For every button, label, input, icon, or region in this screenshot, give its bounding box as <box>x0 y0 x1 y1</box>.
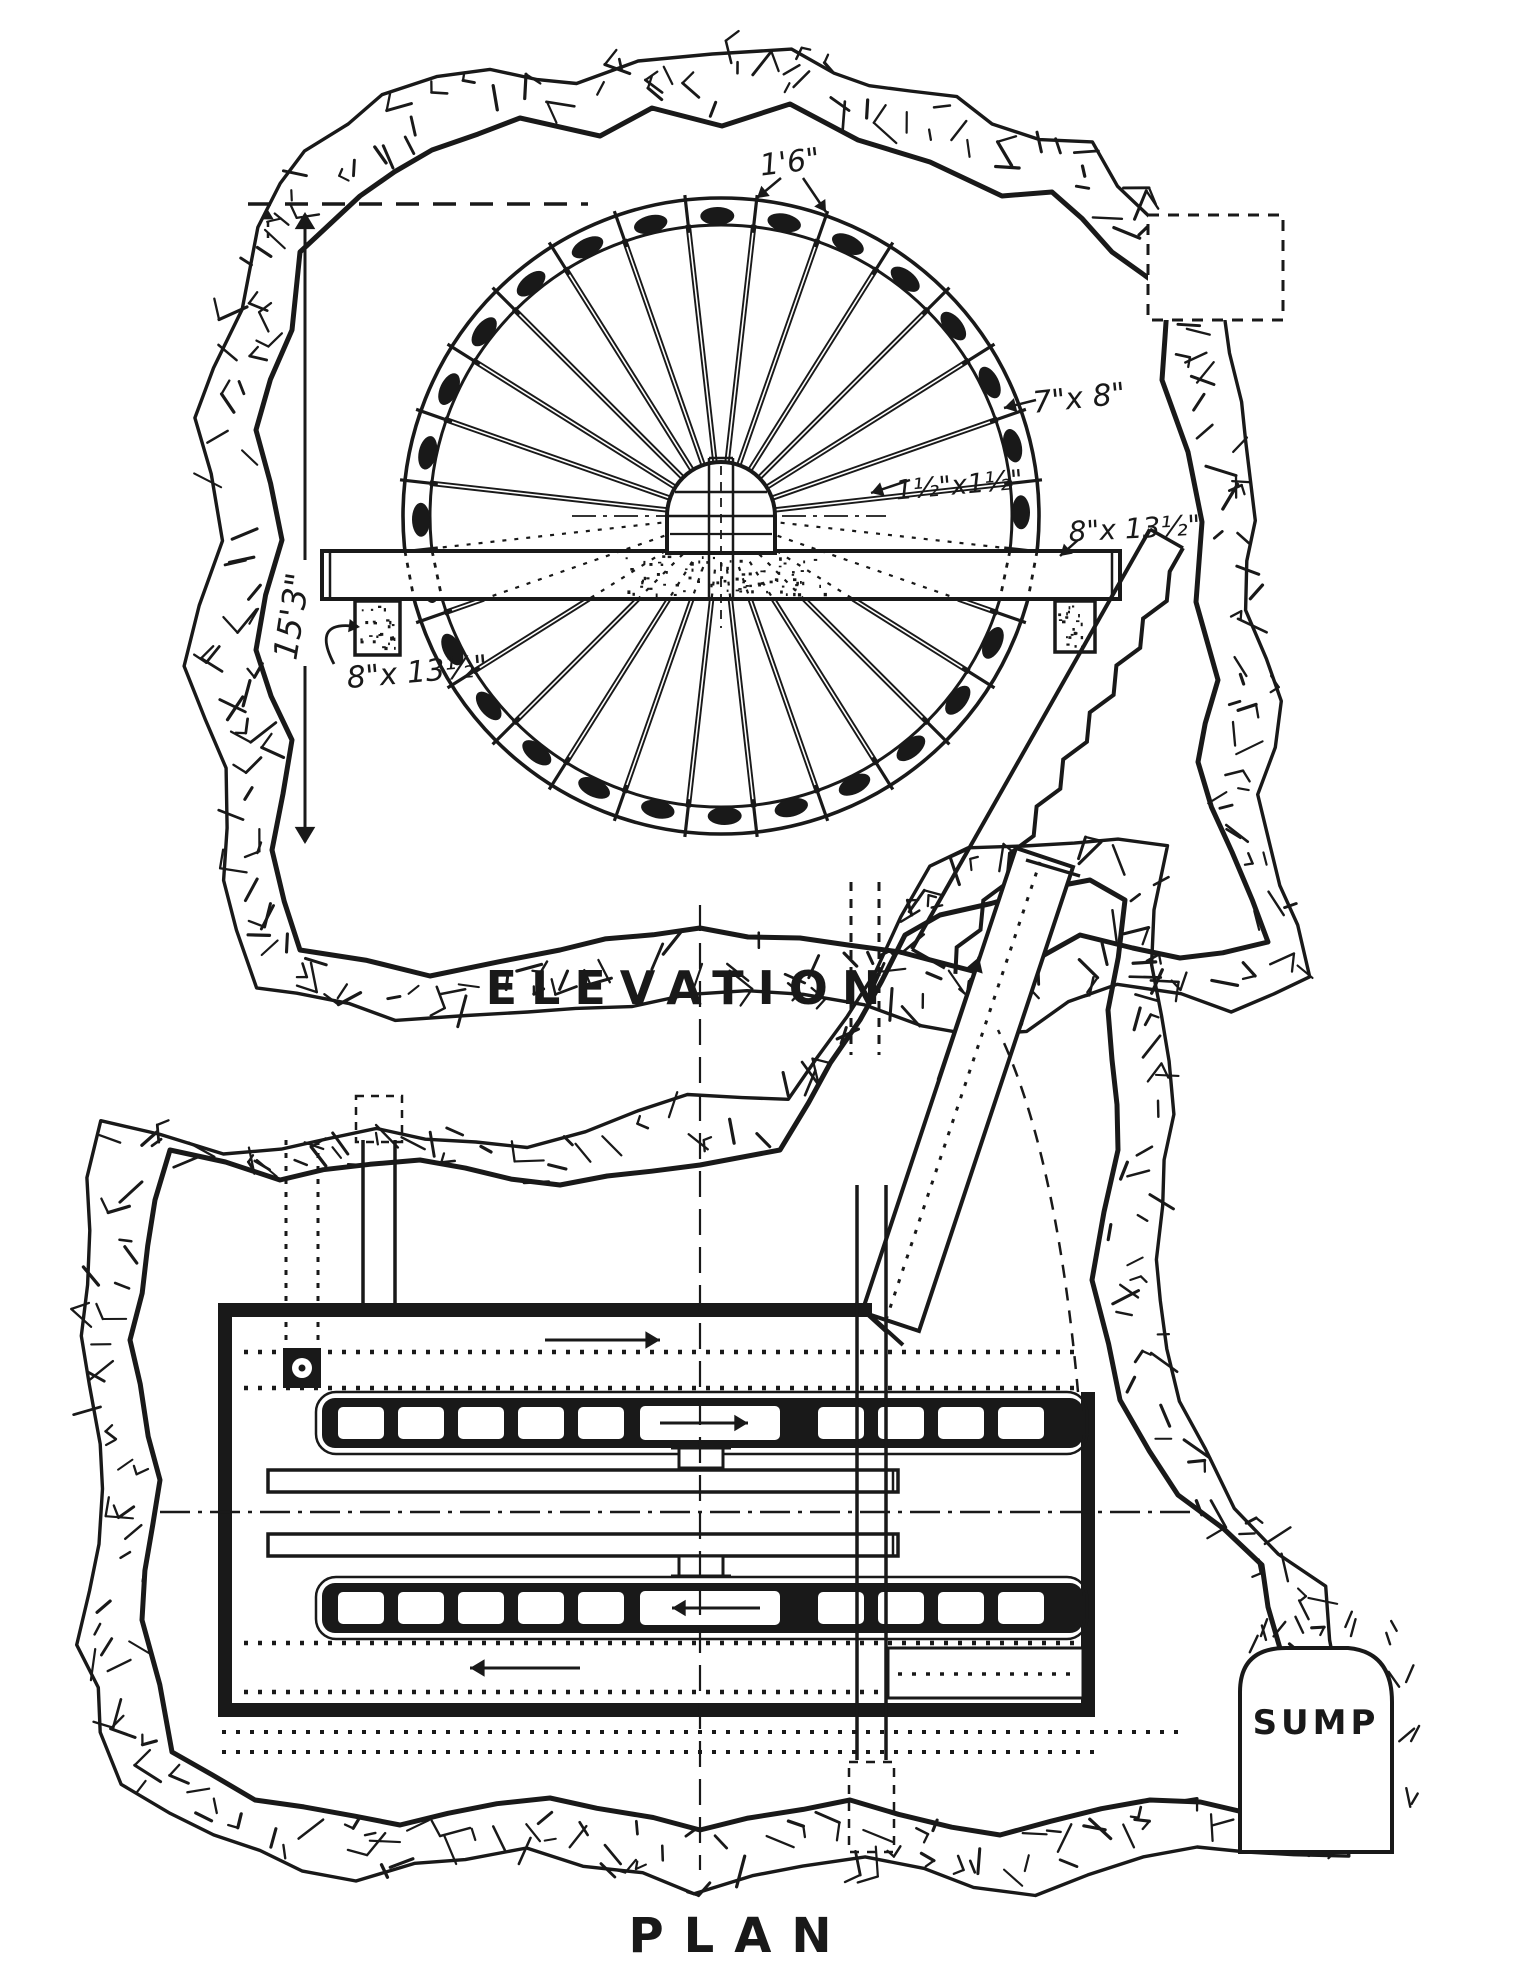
sump-label: SUMP <box>1253 1703 1380 1743</box>
dim-bucket-pitch: 1'6" <box>758 142 822 184</box>
plan-title: PLAN <box>628 1908 851 1964</box>
dim-spoke-section: 1½"x1½" <box>894 465 1024 507</box>
dim-beam-section-right: 8"x 13½" <box>1068 509 1201 549</box>
dim-rim-section: 7"x 8" <box>1031 376 1127 421</box>
elevation-title: ELEVATION <box>486 961 895 1015</box>
dim-overall-height: 15'3" <box>266 570 318 662</box>
technical-drawing: 1'6" 7"x 8" 1½"x1½" 8"x 13½" 8"x 13½" 15… <box>0 0 1526 1966</box>
drawing-page: 1'6" 7"x 8" 1½"x1½" 8"x 13½" 8"x 13½" 15… <box>0 0 1526 1966</box>
wheel-bucket-bands-plan <box>316 1392 1087 1639</box>
